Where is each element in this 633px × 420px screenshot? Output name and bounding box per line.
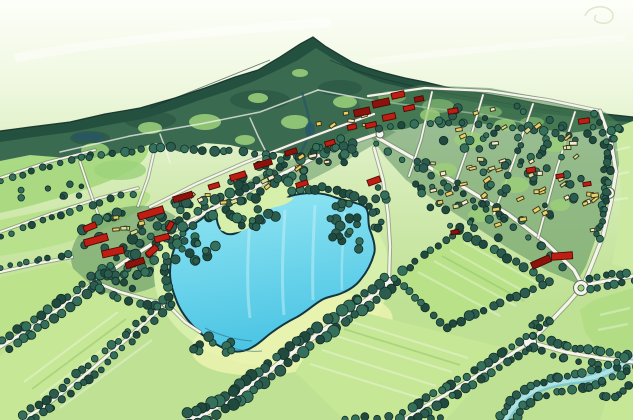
tree — [91, 355, 98, 362]
tree — [408, 403, 417, 412]
tree — [156, 143, 165, 152]
tree — [523, 333, 529, 339]
tree — [374, 415, 381, 420]
tree — [381, 191, 390, 200]
tree — [609, 374, 615, 380]
tree — [171, 255, 180, 264]
building — [590, 228, 595, 232]
tree — [225, 188, 235, 198]
tree — [428, 172, 435, 179]
tree — [129, 339, 135, 345]
tree — [161, 264, 168, 271]
building — [448, 108, 459, 115]
building — [220, 201, 227, 205]
tree — [520, 288, 530, 298]
tree — [435, 243, 441, 249]
tree — [418, 299, 425, 306]
tree — [388, 124, 394, 130]
tree — [14, 339, 22, 347]
tree — [141, 316, 147, 322]
tree — [366, 203, 372, 209]
tree — [375, 185, 381, 191]
tree — [470, 198, 475, 203]
tree — [602, 393, 610, 401]
tree — [210, 146, 220, 156]
tree — [18, 411, 27, 420]
tree — [0, 234, 4, 239]
tree — [414, 413, 422, 420]
tree — [566, 180, 574, 188]
tree — [475, 121, 482, 128]
tree — [133, 320, 140, 327]
tree — [514, 352, 522, 360]
tree — [166, 142, 175, 151]
tree — [509, 344, 515, 350]
tree — [133, 331, 140, 338]
tree — [515, 148, 521, 154]
building — [569, 141, 577, 145]
tree — [345, 214, 354, 223]
tree — [181, 238, 188, 245]
tree — [133, 270, 141, 278]
tree — [595, 366, 602, 373]
building — [113, 228, 120, 232]
tree — [539, 126, 548, 135]
tree — [607, 127, 615, 135]
tree — [49, 215, 54, 220]
tree — [179, 246, 185, 252]
tree — [138, 146, 145, 153]
tree — [391, 275, 398, 282]
tree — [79, 184, 84, 189]
tree — [530, 286, 537, 293]
tree — [578, 175, 585, 182]
tree — [466, 136, 475, 145]
tree — [89, 202, 97, 210]
tree — [479, 240, 488, 249]
tree — [114, 295, 121, 302]
tree — [105, 359, 111, 365]
tree — [510, 224, 517, 231]
tree — [107, 262, 114, 269]
tree — [154, 303, 161, 310]
tree — [130, 191, 136, 197]
building — [437, 200, 443, 205]
tree — [476, 146, 483, 153]
tree — [181, 145, 189, 153]
tree — [622, 269, 630, 277]
tree — [449, 392, 455, 398]
tree — [599, 129, 606, 136]
forest-clearing — [189, 114, 221, 130]
building — [591, 193, 599, 198]
tree — [34, 324, 42, 332]
tree — [529, 323, 535, 329]
tree — [472, 205, 477, 210]
tree — [594, 285, 600, 291]
tree — [510, 125, 516, 131]
building — [526, 167, 536, 173]
tree — [102, 348, 108, 354]
tree — [576, 359, 582, 365]
tree — [564, 342, 572, 350]
tree — [584, 130, 592, 138]
tree — [619, 279, 626, 286]
tree — [109, 150, 115, 156]
tree — [349, 192, 359, 202]
tree — [28, 416, 35, 420]
forest-clearing — [281, 115, 309, 129]
tree — [399, 157, 405, 163]
building — [343, 111, 349, 115]
forest-clearing — [235, 135, 255, 145]
building — [205, 194, 210, 197]
tree — [541, 379, 548, 386]
tree — [454, 376, 460, 382]
tree — [487, 181, 494, 188]
tree — [153, 222, 162, 231]
tree — [354, 296, 362, 304]
tree — [603, 139, 609, 145]
forest-clearing — [333, 96, 357, 108]
building — [491, 141, 498, 145]
tree — [611, 135, 618, 142]
tree — [121, 147, 130, 156]
tree — [112, 277, 119, 284]
tree — [39, 164, 46, 171]
tree — [448, 223, 453, 228]
tree — [114, 255, 120, 261]
tree — [373, 296, 380, 303]
tree — [459, 120, 465, 126]
tree — [336, 233, 343, 240]
tree — [554, 373, 563, 382]
tree — [463, 373, 470, 380]
tree — [464, 311, 474, 321]
tree — [543, 393, 549, 399]
tree — [540, 145, 546, 151]
tree — [427, 204, 434, 211]
tree — [430, 312, 437, 319]
tree — [185, 249, 194, 258]
tree — [546, 116, 553, 123]
tree — [251, 194, 261, 204]
tree — [228, 386, 238, 396]
tree — [480, 169, 487, 176]
tree — [107, 195, 114, 202]
tree — [129, 285, 135, 291]
building — [440, 171, 446, 176]
tree — [242, 185, 249, 192]
tree — [439, 136, 448, 145]
tree — [504, 172, 511, 179]
tree — [22, 322, 31, 331]
tree — [460, 191, 466, 197]
tree — [436, 318, 444, 326]
tree — [437, 415, 443, 420]
tree — [570, 193, 578, 201]
building — [492, 207, 500, 212]
tree — [129, 149, 135, 155]
tree — [601, 167, 607, 173]
tree — [141, 326, 148, 333]
tree — [42, 397, 50, 405]
tree — [467, 220, 472, 225]
tree — [587, 285, 595, 293]
tree — [28, 331, 36, 339]
building — [551, 252, 572, 260]
tree — [519, 159, 524, 164]
tree — [515, 134, 522, 141]
tree — [27, 405, 34, 412]
tree — [252, 151, 258, 157]
tree — [427, 247, 434, 254]
tree — [538, 335, 545, 342]
tree — [530, 333, 536, 339]
tree — [514, 103, 520, 109]
tree — [98, 367, 104, 373]
tree — [487, 123, 493, 129]
tree — [127, 234, 137, 244]
tree — [96, 200, 103, 207]
tree — [275, 365, 286, 376]
tree — [412, 294, 419, 301]
tree — [418, 189, 426, 197]
tree — [551, 353, 556, 358]
tree — [313, 143, 320, 150]
tree — [110, 352, 117, 359]
tree — [427, 121, 433, 127]
tree — [284, 177, 294, 187]
tree — [546, 318, 553, 325]
tree — [496, 365, 502, 371]
tree — [428, 415, 435, 420]
tree — [408, 416, 414, 420]
tree — [368, 285, 377, 294]
tree — [292, 354, 300, 362]
tree — [73, 286, 81, 294]
tree — [212, 410, 222, 420]
building — [566, 145, 571, 149]
tree — [435, 117, 443, 125]
tree — [18, 187, 24, 193]
tree — [6, 332, 14, 340]
tree — [210, 195, 220, 205]
tree — [122, 271, 128, 277]
tree — [67, 181, 74, 188]
tree — [238, 222, 245, 229]
tree — [228, 347, 235, 354]
tree — [165, 293, 174, 302]
tree — [356, 238, 363, 245]
tree — [45, 186, 50, 191]
tree — [288, 187, 296, 195]
building — [534, 190, 539, 194]
building — [316, 121, 322, 126]
tree — [597, 120, 603, 126]
tree — [504, 358, 512, 366]
forest-clearing — [94, 160, 146, 180]
tree — [518, 143, 524, 149]
building — [556, 173, 565, 178]
tree — [66, 302, 76, 312]
masterplan-canvas — [0, 0, 633, 420]
tree — [519, 401, 527, 409]
tree — [586, 384, 593, 391]
tree — [398, 122, 405, 129]
tree — [332, 203, 339, 210]
tree — [520, 109, 526, 115]
tree — [598, 223, 603, 228]
tree — [594, 274, 600, 280]
tree — [603, 159, 611, 167]
tree — [526, 398, 535, 407]
tree — [178, 222, 188, 232]
tree — [116, 338, 122, 344]
building — [453, 204, 459, 209]
building — [348, 119, 355, 123]
tree — [543, 165, 550, 172]
tree — [107, 340, 116, 349]
tree — [432, 401, 442, 411]
building — [578, 118, 590, 124]
tree — [538, 347, 545, 354]
tree — [439, 387, 446, 394]
tree — [443, 324, 451, 332]
tree — [47, 164, 52, 169]
tree — [559, 154, 565, 160]
tree — [446, 120, 452, 126]
tree — [463, 232, 473, 242]
tree — [254, 206, 262, 214]
tree — [239, 147, 248, 156]
tree — [28, 221, 35, 228]
building — [490, 107, 495, 111]
tree — [190, 345, 198, 353]
tree — [120, 279, 127, 286]
tree — [78, 154, 84, 160]
forest-clearing — [248, 93, 268, 103]
tree — [625, 382, 633, 390]
tree — [57, 160, 63, 166]
tree — [337, 135, 345, 143]
tree — [23, 259, 29, 265]
tree — [232, 213, 242, 223]
tree — [604, 150, 611, 157]
tree — [480, 201, 486, 207]
tree — [494, 234, 502, 242]
tree — [596, 347, 605, 356]
tree — [65, 250, 72, 257]
tree — [316, 158, 322, 164]
tree — [534, 380, 540, 386]
tree — [430, 390, 437, 397]
tree — [86, 154, 92, 160]
tree — [480, 307, 487, 314]
tree — [79, 281, 85, 287]
tree — [193, 258, 200, 265]
tree — [0, 266, 3, 271]
tree — [119, 345, 125, 351]
tree — [516, 338, 524, 346]
tree — [118, 192, 124, 198]
tree — [614, 359, 620, 365]
tree — [284, 358, 292, 366]
tree — [374, 141, 379, 146]
tree — [564, 373, 570, 379]
tree — [353, 214, 361, 222]
roundabout-island — [578, 285, 584, 291]
tree — [598, 377, 605, 384]
building — [113, 216, 119, 220]
tree — [325, 186, 331, 192]
tree — [58, 253, 65, 260]
tree — [74, 382, 82, 390]
building — [121, 226, 127, 230]
tree — [603, 188, 611, 196]
tree — [66, 209, 73, 216]
tree — [620, 353, 630, 363]
tree — [461, 383, 470, 392]
tree — [453, 186, 458, 191]
tree — [438, 190, 444, 196]
tree — [534, 392, 542, 400]
tree — [277, 157, 284, 164]
tree — [361, 290, 369, 298]
tree — [327, 216, 333, 222]
tree — [0, 337, 6, 344]
tree — [578, 369, 587, 378]
tree — [457, 317, 466, 326]
tree — [380, 287, 392, 299]
tree — [542, 203, 547, 208]
tree — [0, 179, 3, 184]
tree — [35, 401, 43, 409]
tree — [341, 318, 350, 327]
tree — [361, 413, 369, 420]
tree — [41, 320, 49, 328]
tree — [600, 211, 606, 217]
tree — [407, 264, 414, 271]
tree — [20, 172, 26, 178]
tree — [501, 162, 509, 170]
building — [431, 162, 436, 165]
tree — [444, 184, 452, 192]
tree — [591, 110, 598, 117]
tree — [316, 335, 325, 344]
tree — [538, 242, 546, 250]
tree — [8, 263, 13, 268]
tree — [211, 241, 221, 251]
tree — [150, 256, 159, 265]
tree — [610, 280, 618, 288]
tree — [539, 281, 547, 289]
tree — [352, 415, 360, 420]
tree — [183, 212, 190, 219]
tree — [491, 130, 498, 137]
tree — [559, 263, 567, 271]
tree — [355, 245, 363, 253]
tree — [611, 393, 619, 401]
tree — [485, 215, 493, 223]
tree — [195, 241, 201, 247]
tree — [226, 147, 232, 153]
tree — [191, 406, 201, 416]
tree — [59, 384, 67, 392]
tree — [273, 353, 281, 361]
tree — [484, 133, 489, 138]
tree — [606, 349, 614, 357]
